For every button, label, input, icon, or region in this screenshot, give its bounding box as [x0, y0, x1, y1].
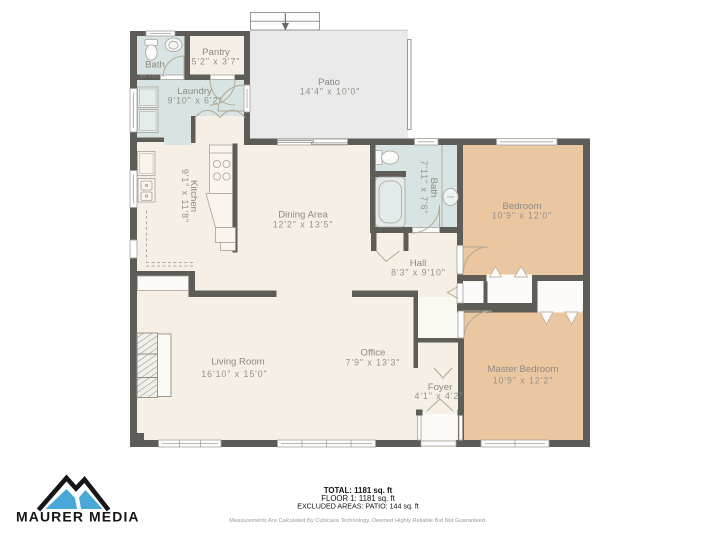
svg-text:10'9" x 12'2": 10'9" x 12'2" — [493, 376, 554, 386]
svg-text:7'11" x 7'6": 7'11" x 7'6" — [419, 160, 429, 214]
svg-text:9'10" x 6'2": 9'10" x 6'2" — [168, 96, 223, 106]
svg-text:12'2" x 13'5": 12'2" x 13'5" — [273, 220, 334, 230]
svg-text:8'3" x 9'10": 8'3" x 9'10" — [391, 268, 446, 278]
svg-text:10'9" x 12'0": 10'9" x 12'0" — [492, 211, 553, 221]
svg-text:7'9" x 13'3": 7'9" x 13'3" — [346, 358, 401, 368]
svg-text:Living Room: Living Room — [211, 357, 264, 368]
svg-text:16'10" x 15'0": 16'10" x 15'0" — [201, 369, 267, 379]
svg-text:5'6" x 5'1": 5'6" x 5'1" — [140, 74, 160, 79]
svg-text:5'2" x 3'7": 5'2" x 3'7" — [192, 57, 241, 67]
svg-text:14'4" x 10'0": 14'4" x 10'0" — [300, 87, 361, 97]
svg-text:Bath: Bath — [145, 60, 165, 71]
svg-text:EXCLUDED AREAS: PATIO: 144 sq.: EXCLUDED AREAS: PATIO: 144 sq. ft — [297, 503, 419, 511]
svg-text:Master Bedroom: Master Bedroom — [488, 364, 559, 375]
svg-text:MAURER MEDIA: MAURER MEDIA — [16, 509, 140, 525]
svg-text:9'1" x 11'8": 9'1" x 11'8" — [180, 169, 190, 223]
svg-text:Measurements Are Calculated By: Measurements Are Calculated By Cubicasa … — [229, 518, 487, 524]
svg-text:FLOOR 1: 1181 sq. ft: FLOOR 1: 1181 sq. ft — [321, 494, 395, 503]
svg-text:4'1" x 4'2": 4'1" x 4'2" — [415, 391, 464, 401]
